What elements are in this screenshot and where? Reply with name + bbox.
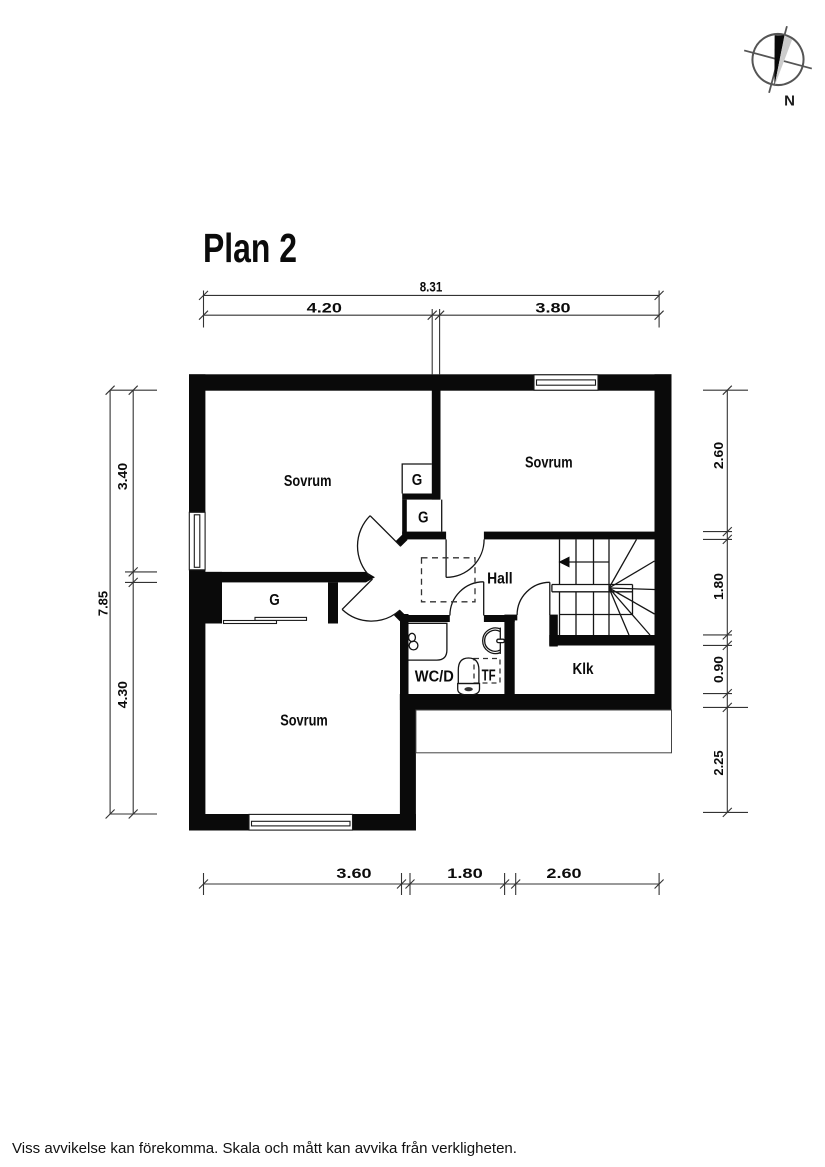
svg-text:Hall: Hall [487, 571, 513, 588]
svg-text:Sovrum: Sovrum [525, 455, 573, 472]
svg-text:G: G [269, 592, 280, 609]
svg-text:8.31: 8.31 [420, 279, 443, 295]
svg-text:TF: TF [482, 668, 496, 685]
svg-text:G: G [412, 472, 423, 489]
svg-text:G: G [418, 510, 429, 527]
svg-text:Sovrum: Sovrum [280, 713, 328, 730]
svg-text:Sovrum: Sovrum [284, 473, 332, 490]
svg-text:4.30: 4.30 [116, 681, 130, 708]
svg-text:0.90: 0.90 [712, 656, 726, 683]
svg-text:1.80: 1.80 [712, 573, 726, 600]
svg-text:WC/D: WC/D [415, 669, 454, 686]
svg-text:N: N [784, 93, 795, 110]
svg-text:3.80: 3.80 [535, 300, 570, 316]
svg-text:3.40: 3.40 [116, 463, 130, 490]
svg-text:2.60: 2.60 [546, 865, 581, 881]
svg-text:4.20: 4.20 [307, 300, 342, 316]
svg-text:Viss avvikelse kan förekomma.: Viss avvikelse kan förekomma. Skala och … [12, 1140, 517, 1157]
svg-text:Klk: Klk [573, 661, 594, 678]
svg-text:3.60: 3.60 [336, 865, 371, 881]
svg-text:7.85: 7.85 [97, 591, 111, 616]
svg-text:1.80: 1.80 [447, 865, 483, 881]
svg-text:2.25: 2.25 [712, 750, 726, 775]
svg-text:2.60: 2.60 [712, 442, 726, 469]
svg-text:Plan 2: Plan 2 [203, 225, 297, 271]
